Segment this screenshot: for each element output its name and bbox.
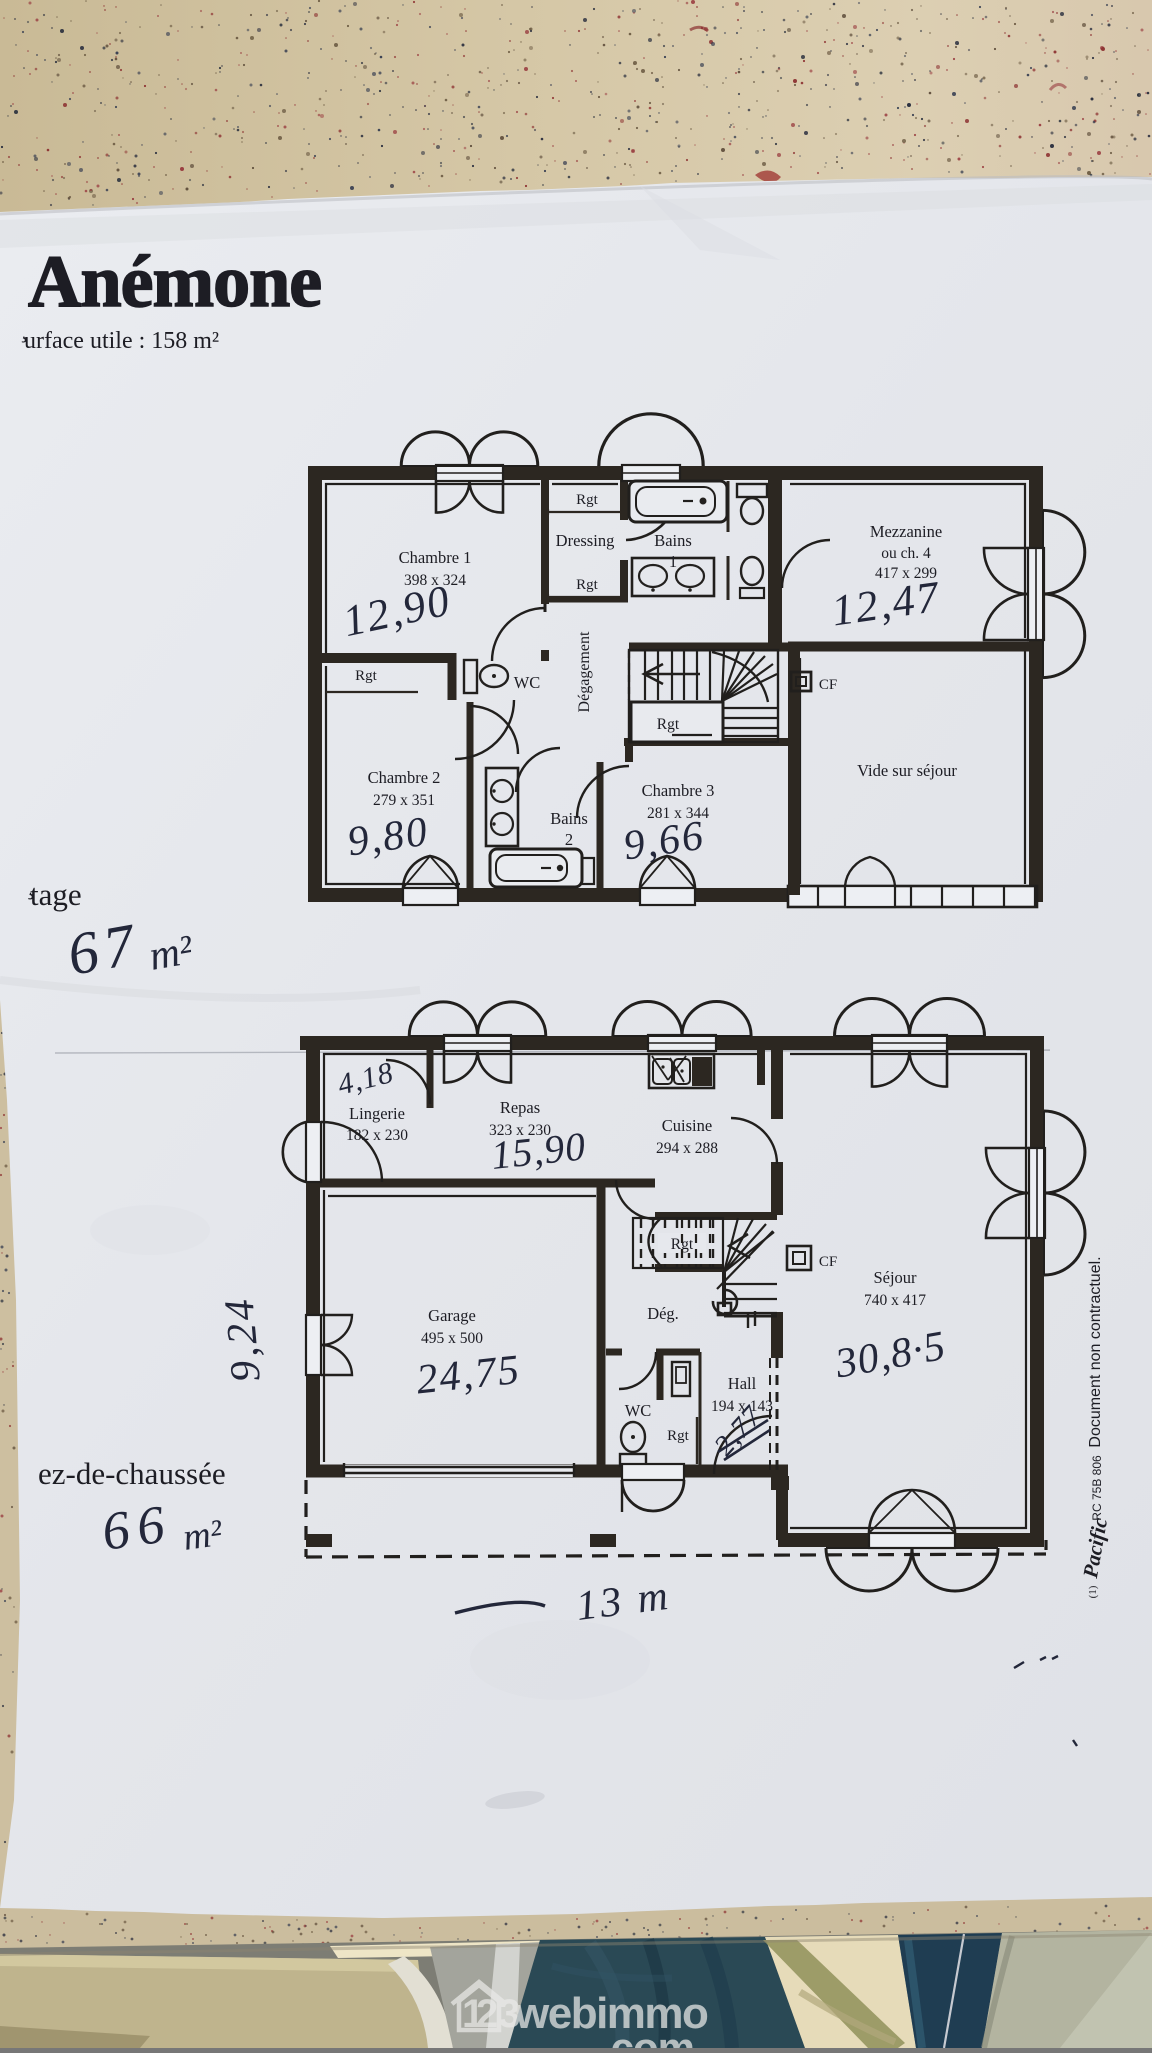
svg-text:294 x 288: 294 x 288 [656, 1140, 718, 1157]
svg-text:(1): (1) [1087, 1585, 1099, 1598]
svg-text:Anémone: Anémone [28, 241, 321, 323]
svg-text:Rgt: Rgt [667, 1428, 690, 1444]
svg-text:Chambre 2: Chambre 2 [368, 768, 441, 787]
svg-text:Rgt: Rgt [576, 492, 599, 508]
svg-text:RC 75B 806: RC 75B 806 [1090, 1455, 1104, 1521]
svg-text:Mezzanine: Mezzanine [870, 522, 942, 541]
svg-text:tage: tage [30, 877, 82, 912]
svg-text:9,24: 9,24 [216, 1295, 269, 1384]
svg-text:m²: m² [180, 1512, 225, 1559]
svg-text:Chambre 3: Chambre 3 [642, 781, 715, 800]
svg-text:23: 23 [476, 1992, 521, 2036]
svg-text:Séjour: Séjour [873, 1268, 917, 1287]
svg-text:Hall: Hall [728, 1374, 757, 1393]
svg-text:Garage: Garage [428, 1306, 476, 1325]
svg-text:¸: ¸ [20, 314, 29, 343]
svg-text:Rgt: Rgt [355, 668, 378, 684]
svg-text:WC: WC [625, 1401, 652, 1420]
svg-text:495 x 500: 495 x 500 [421, 1330, 483, 1347]
svg-text:urface utile : 158 m²: urface utile : 158 m² [24, 328, 219, 354]
svg-text:1: 1 [669, 552, 677, 571]
svg-text:Dég.: Dég. [647, 1304, 679, 1323]
svg-text:2: 2 [565, 830, 573, 849]
svg-text:67: 67 [63, 910, 145, 988]
svg-text:CF: CF [819, 1254, 837, 1270]
svg-text:Cuisine: Cuisine [662, 1116, 712, 1135]
svg-text:182 x 230: 182 x 230 [346, 1127, 408, 1144]
svg-text:740 x 417: 740 x 417 [864, 1292, 926, 1309]
svg-text:Lingerie: Lingerie [349, 1104, 405, 1123]
svg-text:Bains: Bains [550, 809, 588, 828]
svg-text:Vide sur séjour: Vide sur séjour [857, 761, 957, 780]
svg-text:279 x 351: 279 x 351 [373, 792, 435, 809]
svg-text:ou ch. 4: ou ch. 4 [881, 545, 931, 562]
svg-text:Dressing: Dressing [556, 531, 615, 550]
svg-text:WC: WC [514, 673, 541, 692]
svg-text:Bains: Bains [654, 531, 692, 550]
svg-text:Document non contractuel.: Document non contractuel. [1087, 1256, 1104, 1447]
svg-text:Rgt: Rgt [576, 577, 599, 593]
svg-text:Chambre 1: Chambre 1 [399, 548, 472, 567]
svg-text:CF: CF [819, 677, 837, 693]
svg-text:.com: .com [600, 2024, 694, 2048]
svg-text:Dégagement: Dégagement [576, 631, 593, 712]
svg-text:ez-de-chaussée: ez-de-chaussée [38, 1456, 226, 1491]
svg-text:Rgt: Rgt [657, 716, 680, 733]
svg-text:¸: ¸ [26, 865, 36, 901]
svg-text:Repas: Repas [500, 1098, 540, 1117]
svg-text:66: 66 [98, 1493, 176, 1562]
